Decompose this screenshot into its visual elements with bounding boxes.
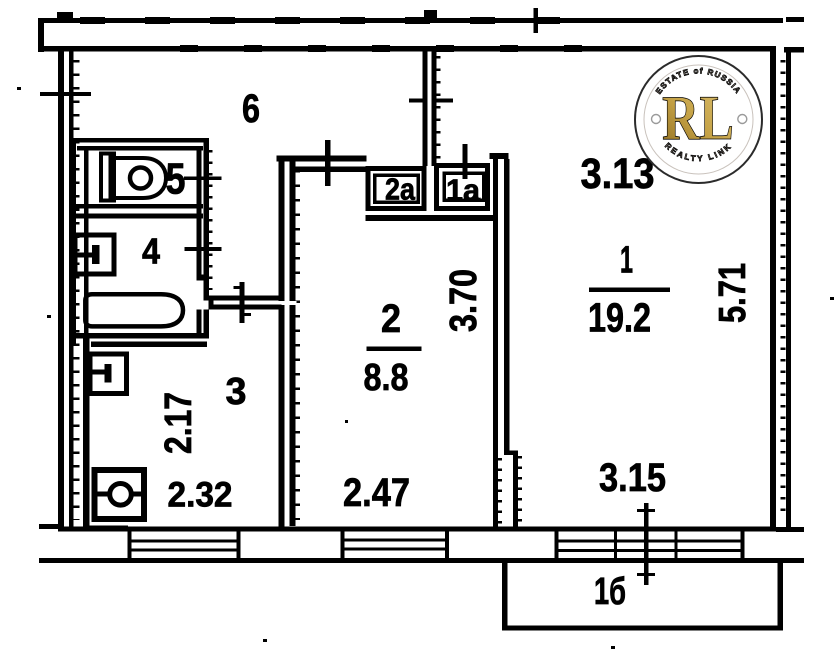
svg-text:4: 4	[142, 231, 160, 272]
svg-text:5: 5	[166, 155, 186, 204]
svg-text:6: 6	[242, 87, 260, 131]
svg-text:3.70: 3.70	[443, 269, 485, 332]
svg-text:19.2: 19.2	[588, 295, 651, 341]
svg-text:3.15: 3.15	[599, 456, 666, 500]
svg-text:2.17: 2.17	[158, 392, 200, 454]
svg-text:8.8: 8.8	[364, 357, 409, 399]
svg-text:1б: 1б	[594, 571, 626, 613]
svg-text:3.13: 3.13	[581, 150, 655, 198]
svg-text:1: 1	[620, 240, 633, 282]
svg-text:5.71: 5.71	[712, 263, 754, 323]
svg-text:3: 3	[226, 371, 247, 413]
svg-text:2: 2	[381, 297, 401, 341]
svg-text:2.47: 2.47	[343, 471, 410, 515]
svg-text:2.32: 2.32	[168, 476, 233, 515]
svg-text:1a: 1a	[446, 173, 481, 208]
svg-text:2a: 2a	[385, 172, 416, 207]
svg-text:RL: RL	[662, 82, 734, 153]
